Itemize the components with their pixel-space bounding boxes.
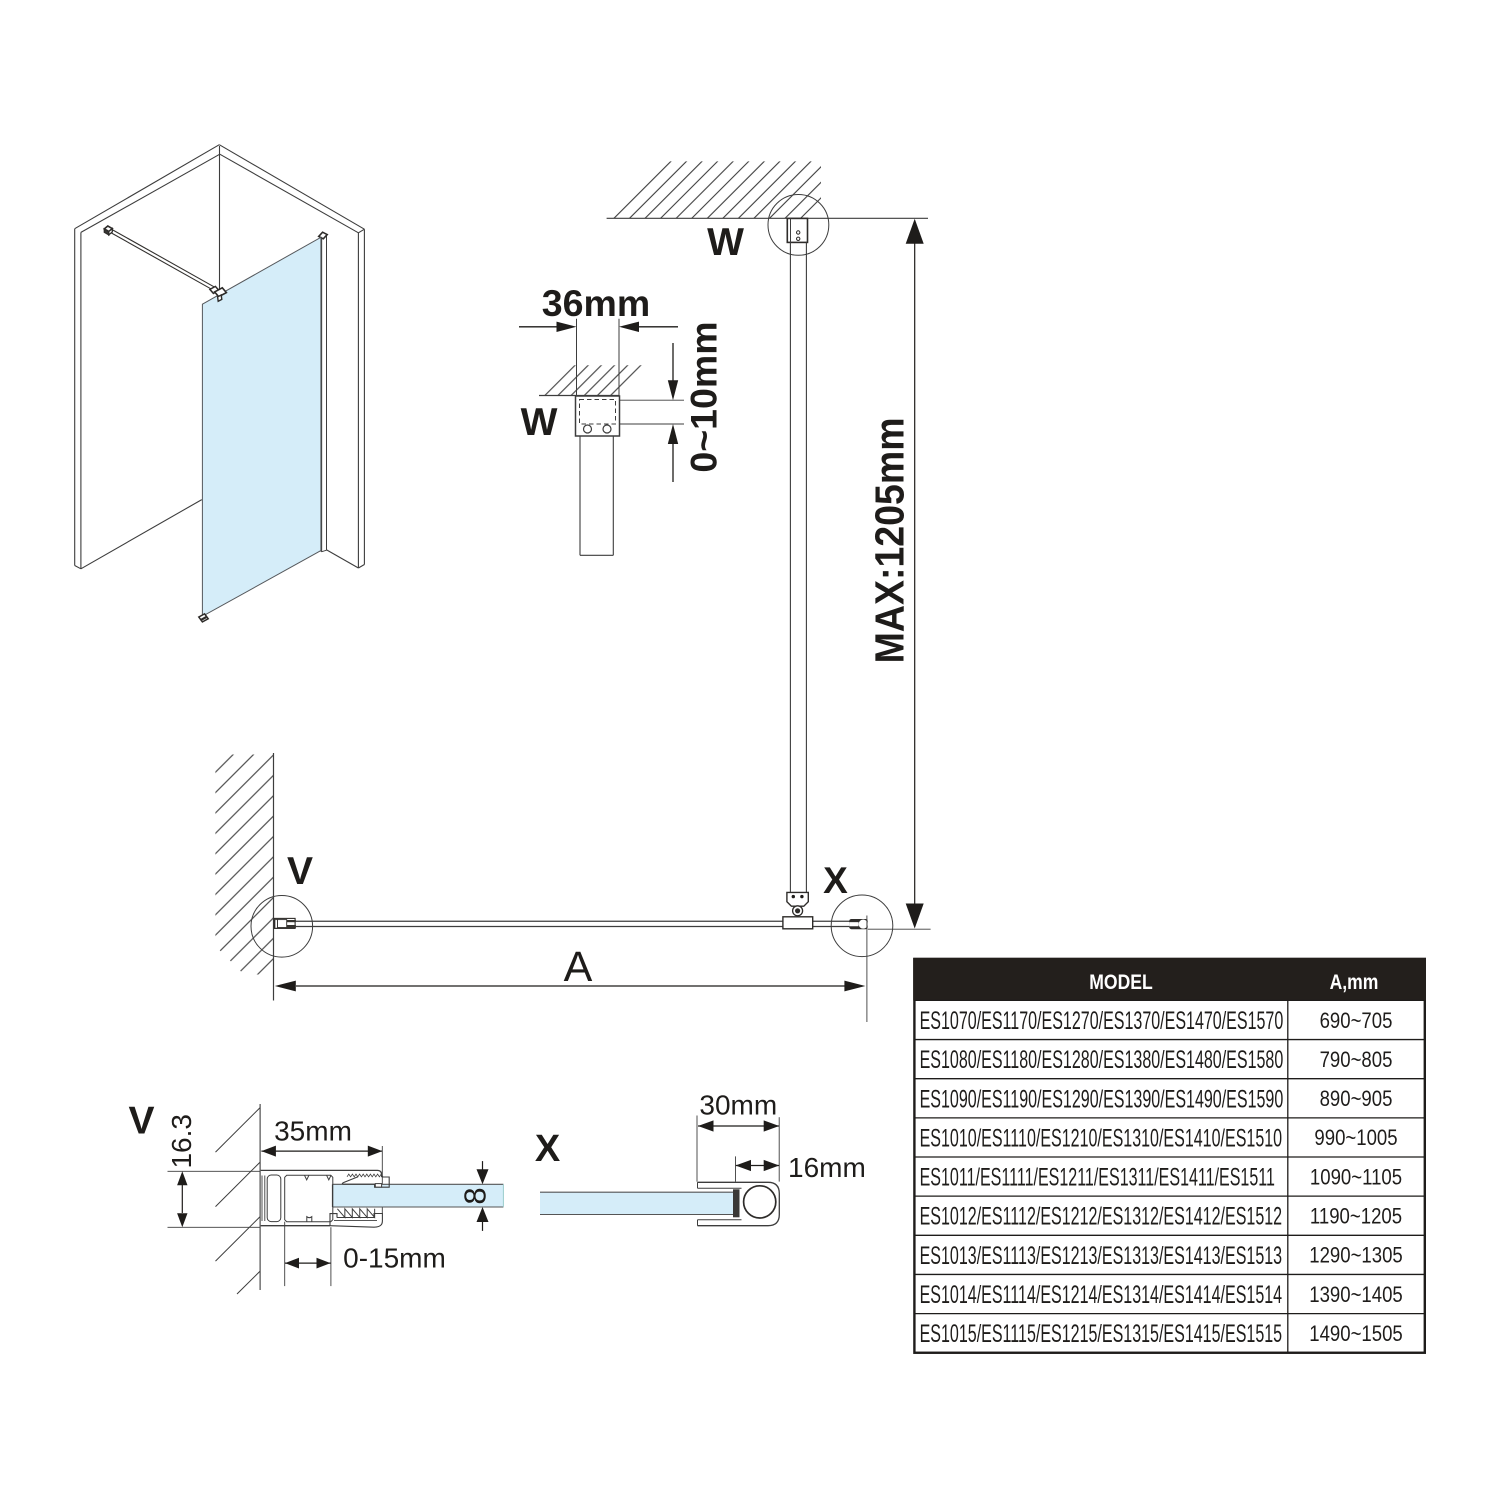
svg-text:ES1015/ES1115/ES1215/ES1315/ES: ES1015/ES1115/ES1215/ES1315/ES1415/ES151… <box>920 1321 1282 1348</box>
svg-text:A: A <box>564 943 593 991</box>
svg-text:690~705: 690~705 <box>1320 1009 1393 1033</box>
svg-text:1390~1405: 1390~1405 <box>1309 1283 1403 1307</box>
svg-text:30mm: 30mm <box>699 1090 777 1121</box>
svg-text:X: X <box>823 860 848 901</box>
svg-text:1490~1505: 1490~1505 <box>1309 1323 1403 1347</box>
svg-text:MODEL: MODEL <box>1089 971 1152 995</box>
svg-text:990~1005: 990~1005 <box>1314 1127 1397 1151</box>
svg-text:X: X <box>535 1128 561 1170</box>
svg-text:1190~1205: 1190~1205 <box>1310 1205 1402 1229</box>
svg-text:8: 8 <box>458 1187 493 1204</box>
svg-text:790~805: 790~805 <box>1320 1049 1393 1073</box>
svg-text:0-15mm: 0-15mm <box>343 1243 446 1274</box>
svg-text:ES1014/ES1114/ES1214/ES1314/ES: ES1014/ES1114/ES1214/ES1314/ES1414/ES151… <box>920 1282 1283 1309</box>
svg-text:ES1080/ES1180/ES1280/ES1380/ES: ES1080/ES1180/ES1280/ES1380/ES1480/ES158… <box>920 1047 1284 1074</box>
svg-text:V: V <box>128 1100 154 1143</box>
svg-text:16.3: 16.3 <box>166 1114 197 1169</box>
svg-text:ES1090/ES1190/ES1290/ES1390/ES: ES1090/ES1190/ES1290/ES1390/ES1490/ES159… <box>920 1086 1284 1113</box>
svg-text:1090~1105: 1090~1105 <box>1310 1166 1402 1190</box>
svg-text:16mm: 16mm <box>788 1152 866 1183</box>
svg-text:0~10mm: 0~10mm <box>683 321 725 472</box>
svg-text:ES1010/ES1110/ES1210/ES1310/ES: ES1010/ES1110/ES1210/ES1310/ES1410/ES151… <box>920 1125 1282 1152</box>
svg-text:ES1013/ES1113/ES1213/ES1313/ES: ES1013/ES1113/ES1213/ES1313/ES1413/ES151… <box>920 1242 1282 1269</box>
svg-text:ES1012/ES1112/ES1212/ES1312/ES: ES1012/ES1112/ES1212/ES1312/ES1412/ES151… <box>920 1203 1282 1230</box>
svg-text:A,mm: A,mm <box>1330 971 1379 995</box>
svg-text:35mm: 35mm <box>274 1115 352 1146</box>
svg-text:MAX:1205mm: MAX:1205mm <box>867 417 913 663</box>
svg-text:W: W <box>707 221 744 264</box>
svg-text:36mm: 36mm <box>542 282 650 324</box>
svg-text:V: V <box>287 850 313 893</box>
svg-text:1290~1305: 1290~1305 <box>1309 1244 1403 1268</box>
svg-text:ES1011/ES1111/ES1211/ES1311/ES: ES1011/ES1111/ES1211/ES1311/ES1411/ES151… <box>920 1164 1275 1191</box>
svg-text:W: W <box>521 401 558 444</box>
svg-text:ES1070/ES1170/ES1270/ES1370/ES: ES1070/ES1170/ES1270/ES1370/ES1470/ES157… <box>920 1008 1284 1035</box>
svg-text:890~905: 890~905 <box>1320 1088 1393 1112</box>
